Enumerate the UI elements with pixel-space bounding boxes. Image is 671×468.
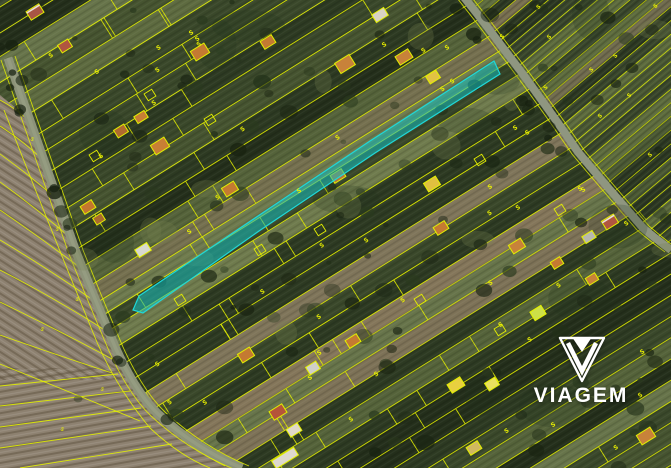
grass-patch xyxy=(315,70,332,93)
tree-blob xyxy=(281,273,296,285)
tree-blob xyxy=(94,112,109,124)
tree-blob xyxy=(484,155,500,168)
tree-blob xyxy=(388,437,402,448)
tree-blob xyxy=(505,24,518,34)
tree-blob xyxy=(145,187,162,200)
roadside-tree xyxy=(525,100,533,107)
tree-blob xyxy=(74,395,83,402)
tree-blob xyxy=(551,66,558,71)
tree-blob xyxy=(652,207,666,218)
tree-blob xyxy=(239,303,255,316)
roadside-tree xyxy=(63,225,70,231)
tree-blob xyxy=(280,105,298,119)
tree-blob xyxy=(120,71,129,79)
tree-blob xyxy=(324,284,341,297)
tree-blob xyxy=(343,95,358,107)
tree-blob xyxy=(591,95,604,105)
tree-blob xyxy=(431,127,448,141)
tree-blob xyxy=(216,430,233,444)
tree-blob xyxy=(627,401,645,415)
tree-blob xyxy=(481,8,500,23)
tree-blob xyxy=(264,90,273,97)
tree-blob xyxy=(375,283,393,297)
roadside-tree xyxy=(161,414,174,425)
tree-blob xyxy=(552,325,569,339)
tree-blob xyxy=(495,168,508,178)
roadside-tree xyxy=(49,184,59,192)
tree-blob xyxy=(575,218,587,228)
tree-blob xyxy=(393,327,403,335)
brand-text: VIAGEM xyxy=(534,384,629,407)
tree-blob xyxy=(356,188,365,195)
tree-canopy xyxy=(589,205,648,249)
tree-blob xyxy=(126,278,136,286)
tree-blob xyxy=(645,349,654,356)
roadside-tree xyxy=(473,36,482,44)
tree-blob xyxy=(493,369,501,375)
tree-blob xyxy=(338,81,351,91)
tree-blob xyxy=(645,24,659,35)
roadside-tree xyxy=(103,323,119,337)
tree-blob xyxy=(390,102,399,109)
map-viewport[interactable]: SSSSSSSSSSSSSSSSSSSSSSSSSSSSSSSSSSSSSSSS… xyxy=(0,0,671,468)
tree-blob xyxy=(469,146,478,153)
tree-blob xyxy=(375,30,385,38)
tree-blob xyxy=(180,75,192,85)
tree-blob xyxy=(341,140,347,145)
tree-blob xyxy=(541,143,555,154)
tree-blob xyxy=(336,212,344,218)
tree-blob xyxy=(581,257,597,270)
roadside-tree xyxy=(555,146,567,157)
tree-blob xyxy=(405,275,419,287)
tree-blob xyxy=(304,67,315,76)
tree-blob xyxy=(30,68,47,81)
tree-blob xyxy=(611,79,622,88)
roadside-tree xyxy=(66,246,76,254)
roadside-tree xyxy=(54,205,69,217)
tree-blob xyxy=(482,368,493,377)
roadside-tree xyxy=(544,135,552,142)
tree-blob xyxy=(626,63,639,73)
tree-blob xyxy=(230,305,236,310)
roadside-tree xyxy=(6,84,14,91)
tree-blob xyxy=(126,49,136,57)
roadside-tree xyxy=(5,40,18,51)
tree-blob xyxy=(216,400,233,414)
tree-blob xyxy=(414,76,423,83)
tree-blob xyxy=(515,410,527,419)
tree-blob xyxy=(450,158,463,168)
tree-blob xyxy=(538,64,548,72)
tree-blob xyxy=(267,312,280,323)
tree-blob xyxy=(268,232,284,245)
roadside-tree xyxy=(16,75,29,86)
tree-blob xyxy=(618,32,634,45)
tree-blob xyxy=(426,4,432,9)
roadside-tree xyxy=(15,109,24,117)
tree-blob xyxy=(418,173,423,177)
tree-blob xyxy=(244,120,259,132)
roadside-tree xyxy=(112,355,123,364)
tree-canopy xyxy=(212,10,285,42)
tree-canopy xyxy=(95,222,134,263)
tree-blob xyxy=(286,347,298,357)
tree-blob xyxy=(637,378,643,382)
tree-blob xyxy=(613,304,622,311)
tree-blob xyxy=(416,435,435,450)
tree-blob xyxy=(229,0,235,4)
tree-blob xyxy=(421,250,438,264)
tree-blob xyxy=(474,239,488,250)
tree-blob xyxy=(197,16,208,25)
tree-blob xyxy=(654,147,663,154)
tree-blob xyxy=(562,209,578,222)
tree-blob xyxy=(132,130,148,143)
tree-blob xyxy=(127,163,138,172)
grass-patch xyxy=(140,218,161,244)
map-canvas[interactable]: SSSSSSSSSSSSSSSSSSSSSSSSSSSSSSSSSSSSSSSS… xyxy=(0,0,671,468)
tree-blob xyxy=(577,295,592,307)
tree-blob xyxy=(115,311,130,323)
tree-blob xyxy=(502,266,516,277)
tree-blob xyxy=(178,306,191,316)
roadside-tree xyxy=(450,3,463,14)
tree-blob xyxy=(398,411,414,424)
grass-patch xyxy=(408,23,434,50)
tree-blob xyxy=(369,447,381,457)
grass-patch xyxy=(275,321,297,345)
tree-blob xyxy=(386,345,396,353)
tree-blob xyxy=(147,354,154,360)
tree-blob xyxy=(142,64,154,73)
tree-blob xyxy=(575,4,583,10)
tree-blob xyxy=(236,58,242,63)
tree-blob xyxy=(345,297,360,309)
tree-blob xyxy=(369,411,380,420)
tree-blob xyxy=(562,96,573,105)
tree-blob xyxy=(72,36,78,40)
tree-blob xyxy=(230,143,247,156)
tree-blob xyxy=(201,270,217,283)
tree-blob xyxy=(378,360,395,374)
tree-blob xyxy=(323,347,330,353)
tree-blob xyxy=(216,47,225,54)
tree-blob xyxy=(300,149,310,157)
tree-blob xyxy=(491,117,502,126)
tree-blob xyxy=(638,266,647,273)
tree-blob xyxy=(399,159,411,169)
tree-blob xyxy=(334,192,352,207)
tree-blob xyxy=(210,200,224,211)
tree-blob xyxy=(253,75,271,89)
tree-blob xyxy=(129,152,141,162)
tree-blob xyxy=(220,266,228,273)
tree-blob xyxy=(130,8,137,13)
tree-blob xyxy=(600,11,615,23)
tree-blob xyxy=(360,206,374,218)
tree-blob xyxy=(647,281,657,289)
tree-blob xyxy=(210,131,218,137)
roadside-tree xyxy=(9,69,16,75)
tree-blob xyxy=(383,223,389,227)
tree-blob xyxy=(647,355,663,368)
tree-blob xyxy=(607,205,619,214)
tree-blob xyxy=(528,444,544,457)
tree-blob xyxy=(326,261,331,265)
tree-blob xyxy=(543,122,556,133)
tree-blob xyxy=(364,253,371,259)
tree-blob xyxy=(532,429,546,441)
